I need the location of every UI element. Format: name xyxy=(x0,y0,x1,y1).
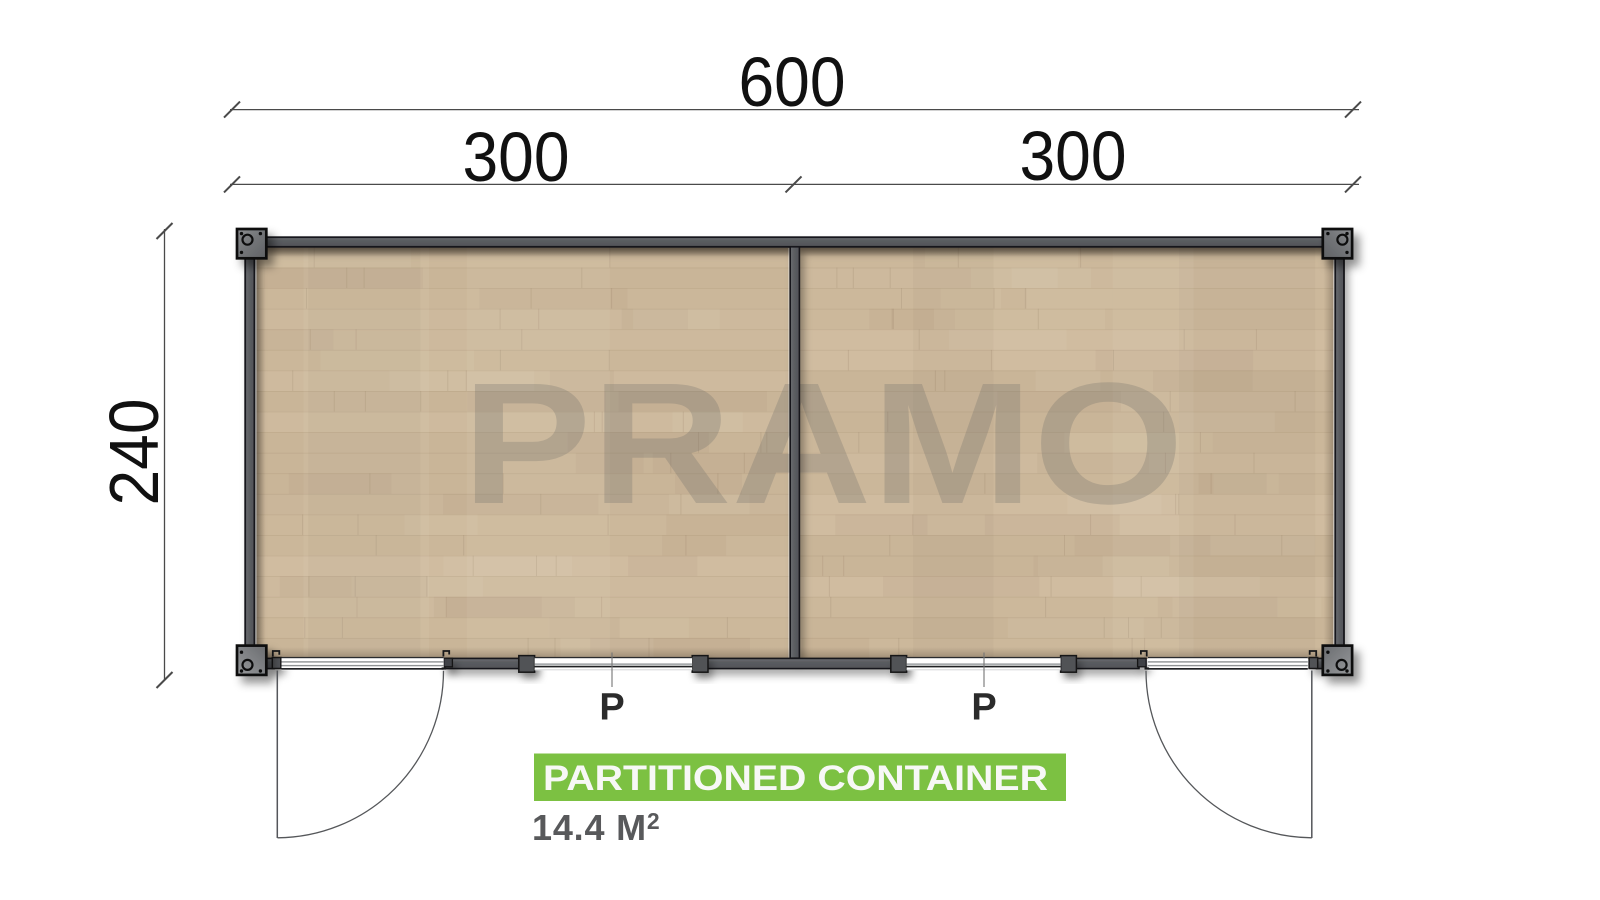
svg-text:PARTITIONED CONTAINER: PARTITIONED CONTAINER xyxy=(543,759,1048,798)
svg-text:P: P xyxy=(599,687,624,729)
svg-text:14.4 M2: 14.4 M2 xyxy=(532,807,660,848)
svg-text:300: 300 xyxy=(463,118,570,196)
svg-text:PRAMO: PRAMO xyxy=(462,346,1184,540)
svg-text:300: 300 xyxy=(1020,117,1127,195)
svg-text:600: 600 xyxy=(739,43,846,121)
svg-text:240: 240 xyxy=(95,399,173,506)
svg-text:P: P xyxy=(971,687,996,729)
